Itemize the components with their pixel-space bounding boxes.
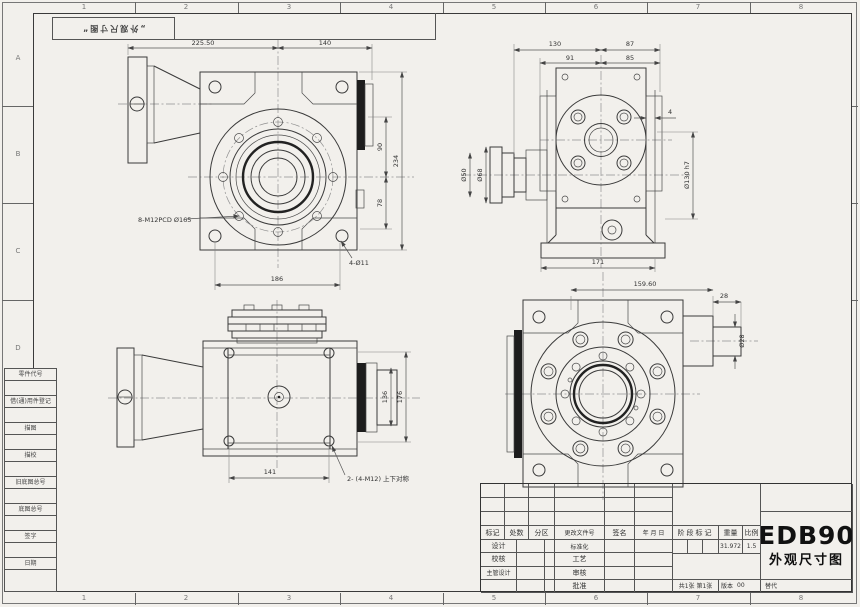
note-front-bolts: 8-M12PCD Ø165 bbox=[138, 216, 191, 224]
dim-top-outer: 176 bbox=[396, 391, 404, 403]
version-cell: 版本 00 bbox=[719, 580, 761, 593]
weight-value: 31.972 bbox=[719, 540, 743, 554]
title-block: 标记 处数 分区 更改文件号 签名 年 月 日 设计 标准化 校核 工艺 主管设… bbox=[480, 483, 852, 592]
role-check: 校核 bbox=[481, 553, 517, 566]
dim-front-bottom: 186 bbox=[271, 275, 283, 283]
rev-header-zone: 分区 bbox=[529, 526, 555, 540]
dim-side-spigot: Ø130 h7 bbox=[683, 161, 691, 189]
blank-cell bbox=[673, 554, 761, 580]
scale-value: 1.5 bbox=[743, 540, 761, 554]
version-value: 00 bbox=[737, 582, 745, 589]
dim-front-htotal: 234 bbox=[392, 155, 400, 167]
top-view: 136 176 141 2- (4-M12) 上下对称 bbox=[108, 300, 420, 483]
rev-cell bbox=[529, 498, 555, 512]
dim-front-w1: 225.50 bbox=[192, 39, 215, 47]
sig-cell bbox=[517, 567, 545, 580]
weight-label: 重量 bbox=[719, 526, 743, 540]
version-label: 版本 bbox=[721, 581, 733, 590]
dim-side-plate: 4 bbox=[668, 108, 672, 116]
rev-header-date: 年 月 日 bbox=[635, 526, 673, 540]
dim-rear-w: 159.60 bbox=[634, 280, 657, 288]
dim-front-h1: 90 bbox=[376, 143, 384, 151]
rev-cell bbox=[481, 498, 505, 512]
stage-mark-label: 阶段标记 bbox=[673, 526, 719, 540]
stage-cell bbox=[688, 540, 703, 554]
sig-cell bbox=[635, 540, 673, 553]
sig-cell bbox=[545, 540, 555, 553]
part-name-cell: EDB90 外观尺寸图 bbox=[761, 512, 853, 580]
front-view: 225.50 140 90 78 234 186 8-M12PCD Ø165 4… bbox=[118, 39, 414, 290]
sig-cell bbox=[481, 580, 517, 593]
dim-side-t3: 91 bbox=[566, 54, 574, 62]
role-audit: 审核 bbox=[555, 567, 605, 580]
sheet-count: 共1张 第1张 bbox=[673, 580, 719, 593]
rev-cell bbox=[605, 512, 635, 526]
dim-front-h2: 78 bbox=[376, 199, 384, 207]
rev-cell bbox=[635, 484, 673, 498]
dim-rear-shaft-dia: Ø28 bbox=[738, 334, 746, 347]
sig-cell bbox=[605, 553, 635, 566]
sig-cell bbox=[545, 580, 555, 593]
sig-cell bbox=[517, 540, 545, 553]
rev-cell bbox=[481, 512, 505, 526]
dim-side-dinner: Ø50 bbox=[460, 168, 468, 181]
role-process: 工艺 bbox=[555, 553, 605, 566]
dim-side-t1: 130 bbox=[549, 40, 561, 48]
rev-header-sign: 签名 bbox=[605, 526, 635, 540]
rev-cell bbox=[529, 512, 555, 526]
dim-side-t2: 87 bbox=[626, 40, 634, 48]
rev-header-mark: 标记 bbox=[481, 526, 505, 540]
rev-cell bbox=[505, 484, 529, 498]
sig-cell bbox=[545, 567, 555, 580]
role-design: 设计 bbox=[481, 540, 517, 553]
role-chief: 主管设计 bbox=[481, 567, 517, 580]
rev-cell bbox=[605, 484, 635, 498]
stage-cell bbox=[673, 540, 688, 554]
role-approve: 批准 bbox=[555, 580, 605, 593]
sig-cell bbox=[635, 553, 673, 566]
dim-side-douter: Ø68 bbox=[476, 168, 484, 181]
rev-cell bbox=[505, 512, 529, 526]
sig-cell bbox=[605, 580, 635, 593]
rev-cell bbox=[481, 484, 505, 498]
side-view: 130 87 91 85 Ø68 Ø50 4 Ø130 h7 171 bbox=[460, 40, 698, 272]
sig-cell bbox=[635, 567, 673, 580]
rev-header-count: 处数 bbox=[505, 526, 529, 540]
note-front-holes: 4-Ø11 bbox=[349, 259, 369, 267]
role-standard: 标准化 bbox=[555, 540, 605, 553]
drawing-sheet: 1 2 3 4 5 6 7 8 1 2 3 4 5 6 7 8 A B C D … bbox=[0, 0, 860, 607]
sig-cell bbox=[605, 567, 635, 580]
model-name: EDB90 bbox=[761, 523, 853, 549]
scale-label: 比例 bbox=[743, 526, 761, 540]
dim-top-bottom: 141 bbox=[264, 468, 276, 476]
rev-cell bbox=[555, 498, 605, 512]
note-top-sym: 2- (4-M12) 上下对称 bbox=[347, 474, 410, 483]
sig-cell bbox=[517, 553, 545, 566]
sig-cell bbox=[545, 553, 555, 566]
dim-front-w2: 140 bbox=[319, 39, 331, 47]
sig-cell bbox=[605, 540, 635, 553]
sig-cell bbox=[635, 580, 673, 593]
rear-view: 159.60 28 Ø28 bbox=[505, 272, 758, 500]
rev-cell bbox=[635, 498, 673, 512]
drawing-no-cell bbox=[673, 484, 761, 526]
rev-cell bbox=[555, 512, 605, 526]
doc-title: 外观尺寸图 bbox=[769, 549, 844, 568]
rev-cell bbox=[505, 498, 529, 512]
dim-rear-shaft-len: 28 bbox=[720, 292, 728, 300]
rev-cell bbox=[529, 484, 555, 498]
dim-top-inner: 136 bbox=[381, 391, 389, 403]
rev-cell bbox=[555, 484, 605, 498]
dim-side-t4: 85 bbox=[626, 54, 634, 62]
rev-header-doc-no: 更改文件号 bbox=[555, 526, 605, 540]
blank-cell bbox=[761, 484, 853, 512]
replace-cell: 替代 bbox=[761, 580, 853, 593]
stage-cell bbox=[703, 540, 719, 554]
rev-cell bbox=[605, 498, 635, 512]
sig-cell bbox=[517, 580, 545, 593]
rev-cell bbox=[635, 512, 673, 526]
dim-side-bottom: 171 bbox=[592, 258, 604, 266]
